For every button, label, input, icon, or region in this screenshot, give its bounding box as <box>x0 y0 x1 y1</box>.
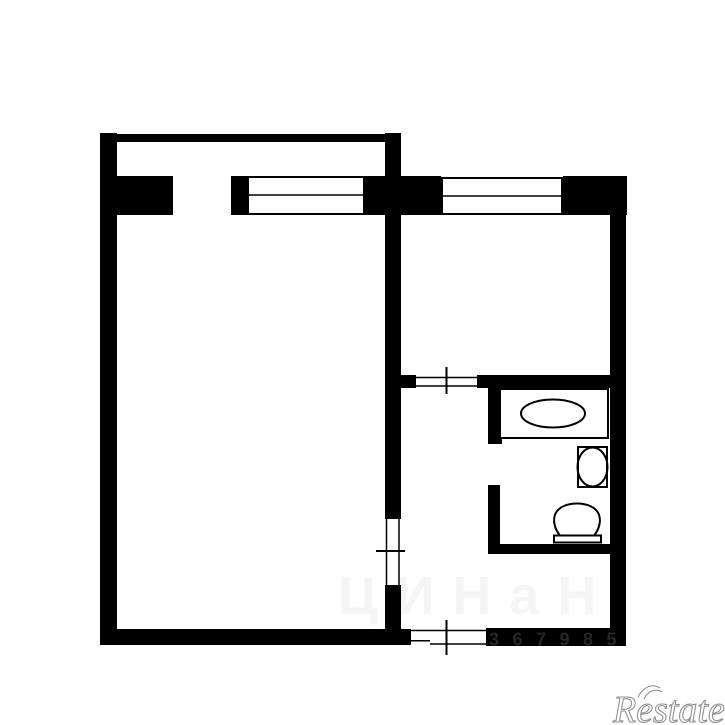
svg-text:367985: 367985 <box>489 630 630 650</box>
svg-text:ЦИНаН: ЦИНаН <box>338 566 614 626</box>
svg-text:Restate: Restate <box>612 689 725 725</box>
